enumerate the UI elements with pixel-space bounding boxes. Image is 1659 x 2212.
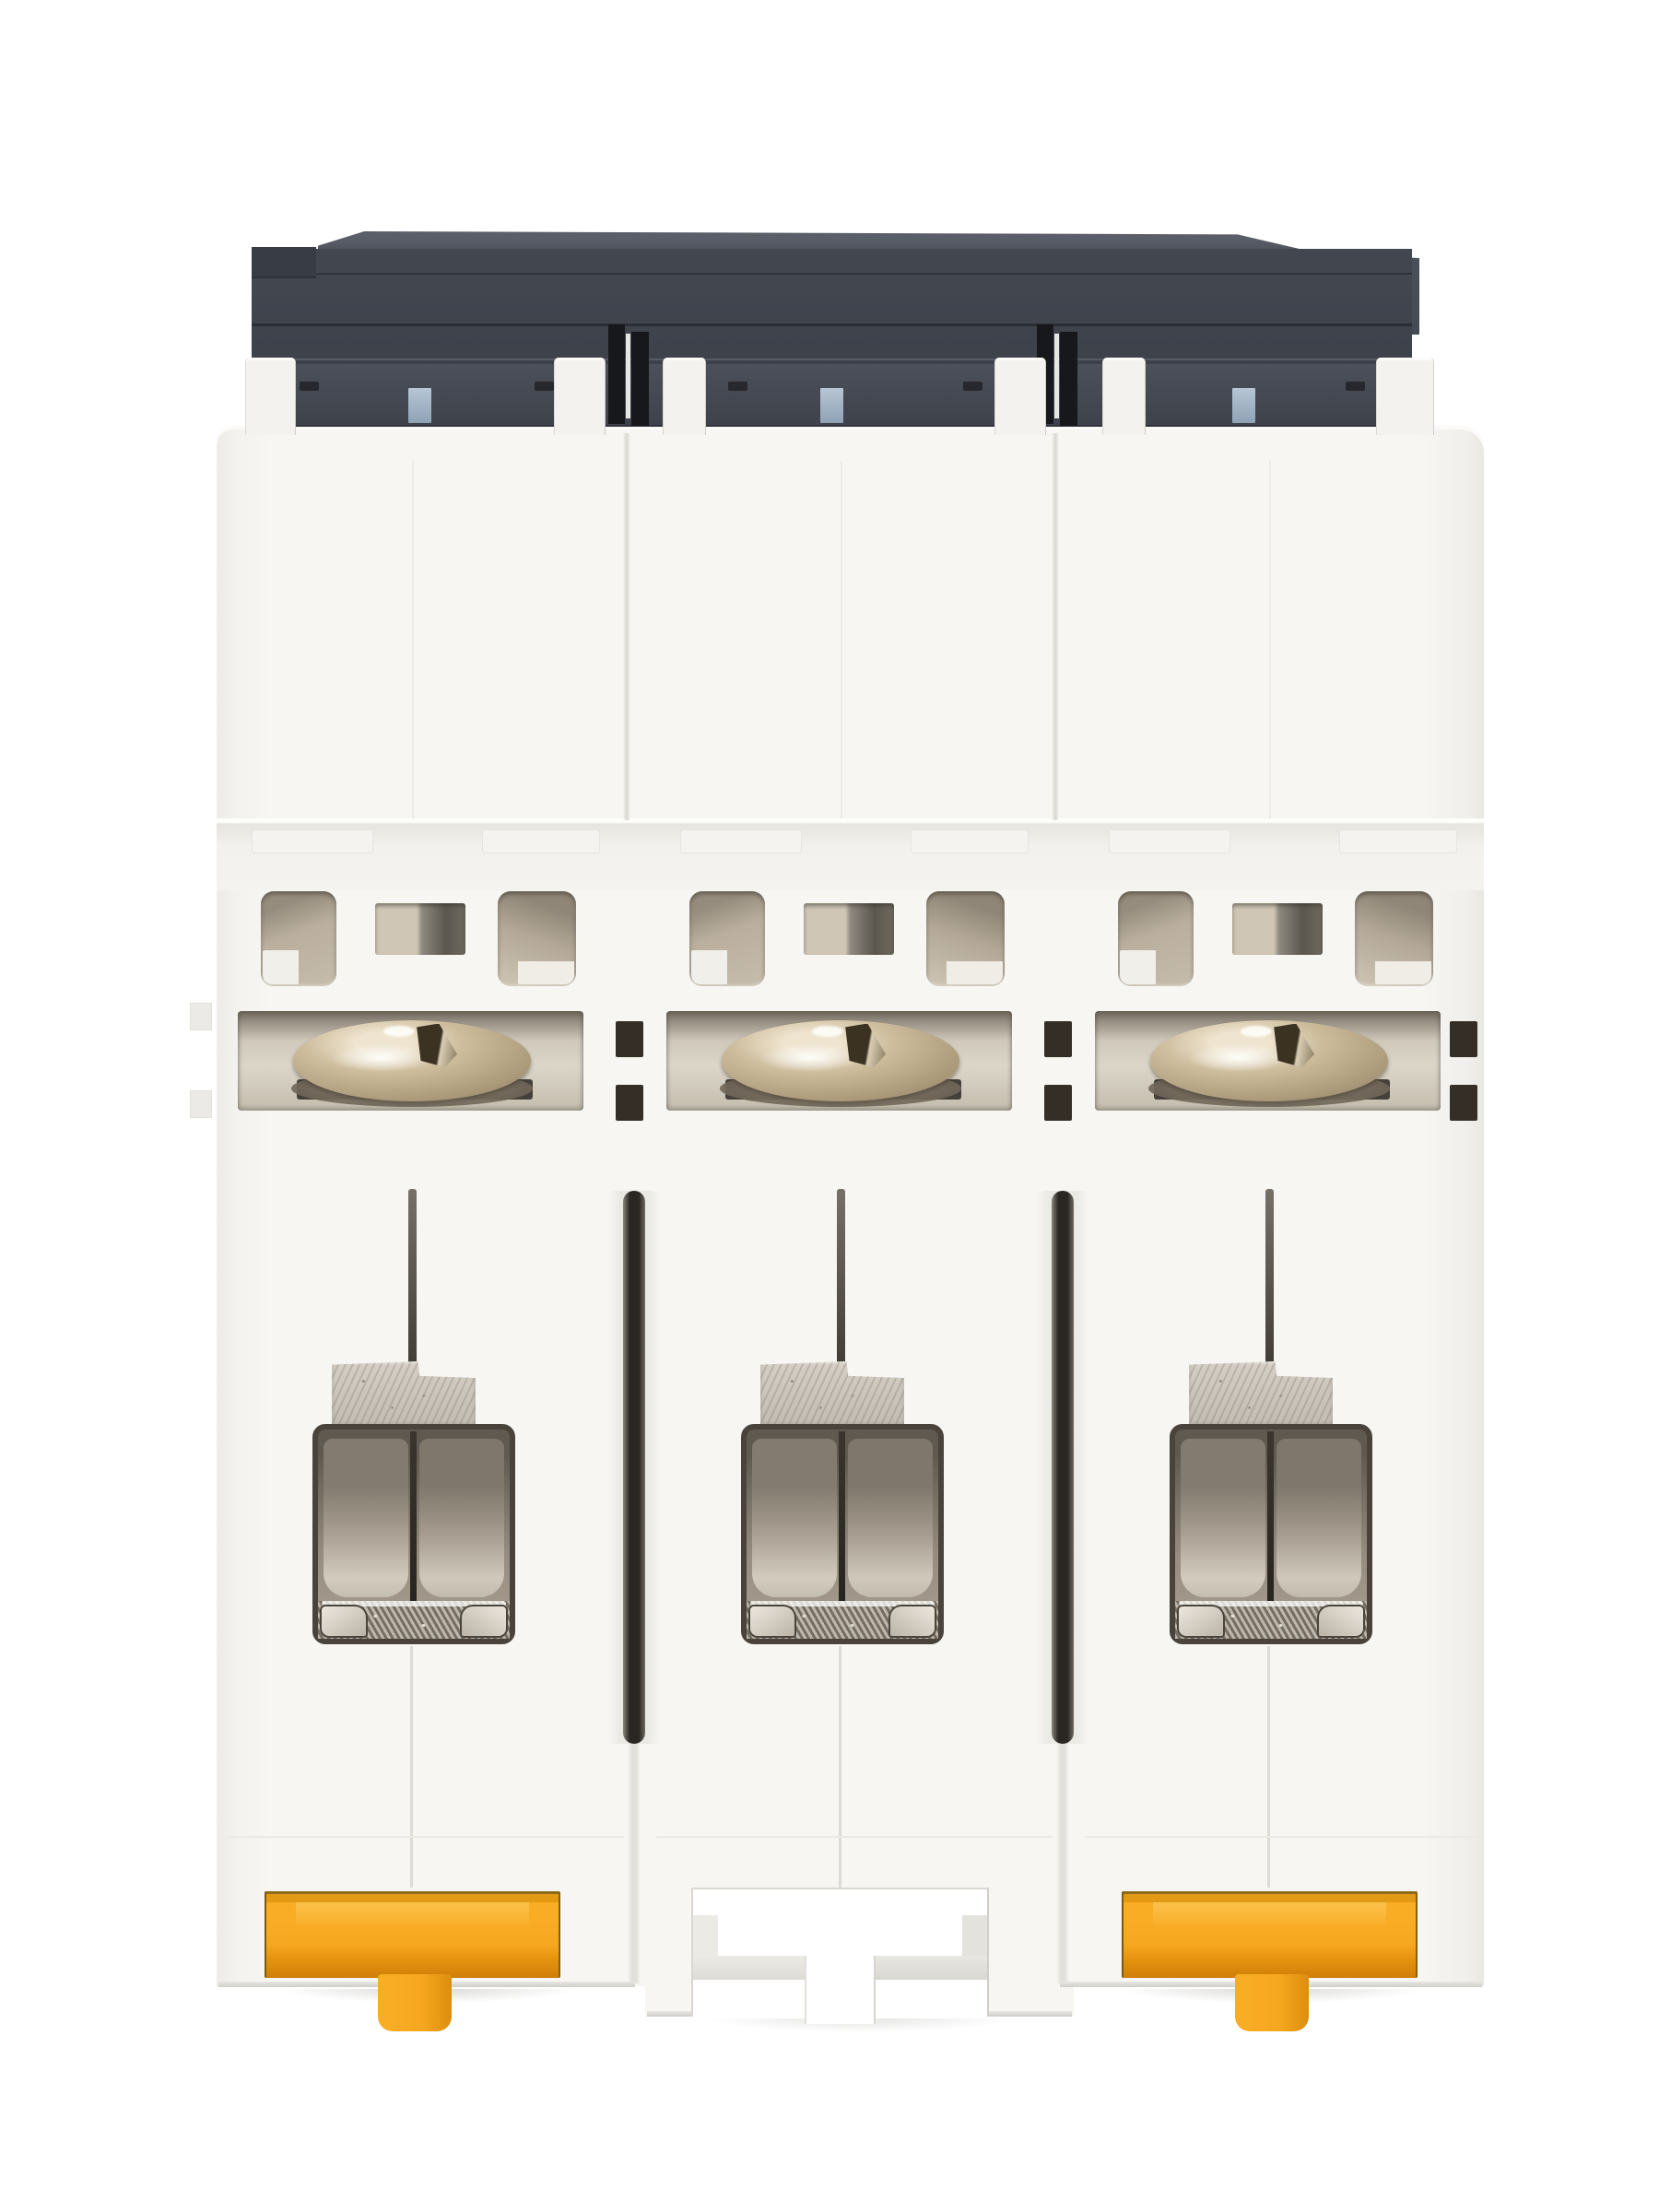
notch-channel: [805, 1956, 876, 2024]
terminal-metal-tab: [760, 1361, 904, 1428]
busbar-slot: [375, 903, 465, 955]
din-rail-clip-tab: [1235, 1974, 1309, 2031]
notch-wall: [693, 1956, 805, 1980]
terminal-cavity: [324, 1439, 408, 1597]
terminal-cavity: [848, 1439, 933, 1597]
terminal-divider: [1267, 1431, 1274, 1601]
notch-wall: [876, 1956, 987, 1980]
pole-center-seam: [839, 1646, 841, 1888]
wire-terminal-opening: [312, 1424, 515, 1644]
terminal-divider: [839, 1431, 845, 1601]
clamp-hook: [320, 1605, 368, 1638]
mould-line: [1085, 1836, 1481, 1838]
busbar-slot: [804, 903, 894, 955]
pole-center-seam: [1267, 1646, 1270, 1888]
pole-center-seam: [412, 461, 414, 818]
terminal-cavity: [419, 1439, 504, 1597]
center-groove: [837, 1189, 845, 1364]
terminal-screw-recess: [1095, 1011, 1441, 1111]
ledge-recess: [680, 829, 802, 853]
pole-3: [1074, 0, 1502, 2212]
terminal-screw-recess: [238, 1011, 583, 1111]
ledge-recess: [252, 829, 373, 853]
din-rail-clip: [1122, 1891, 1418, 1978]
terminal-metal-tab: [332, 1361, 476, 1428]
vent-window: [926, 891, 1005, 986]
terminal-cavity: [1181, 1439, 1265, 1597]
pole-1: [217, 0, 645, 2212]
edge-recess: [190, 1003, 212, 1030]
vent-window: [1118, 891, 1194, 986]
center-groove: [1265, 1189, 1274, 1364]
screw-highlight: [383, 1026, 415, 1037]
pole-center-seam: [841, 461, 842, 818]
clamp-hook: [1317, 1605, 1365, 1638]
edge-recess: [190, 1090, 212, 1118]
ledge-recess: [911, 829, 1029, 853]
terminal-cavity: [752, 1439, 837, 1597]
clamp-hook: [1177, 1605, 1225, 1638]
pole-center-seam: [1269, 461, 1271, 818]
wire-terminal-opening: [1170, 1424, 1372, 1644]
terminal-screw-recess: [666, 1011, 1012, 1111]
mould-line: [656, 1836, 1053, 1838]
terminal-metal-tab: [1189, 1361, 1333, 1428]
mould-line: [228, 1836, 624, 1838]
pole-center-seam: [410, 1646, 413, 1888]
ledge-recess: [482, 829, 600, 853]
wire-terminal-opening: [741, 1424, 944, 1644]
ledge-recess: [1339, 829, 1457, 853]
din-rail-clip-tab: [378, 1974, 452, 2031]
vent-window: [689, 891, 765, 986]
busbar-slot: [1232, 903, 1323, 955]
terminal-cavity: [1277, 1439, 1361, 1597]
screw-highlight: [1241, 1026, 1272, 1037]
din-rail-clip: [265, 1891, 560, 1978]
pole-2: [645, 0, 1074, 2212]
vent-window: [261, 891, 336, 986]
photo-stage: [0, 0, 1659, 2212]
clamp-hook: [888, 1605, 936, 1638]
center-groove: [408, 1189, 417, 1364]
screw-highlight: [812, 1026, 843, 1037]
terminal-divider: [410, 1431, 417, 1601]
vent-window: [498, 891, 576, 986]
clamp-hook: [748, 1605, 796, 1638]
clamp-hook: [460, 1605, 508, 1638]
vent-window: [1355, 891, 1433, 986]
ledge-recess: [1109, 829, 1230, 853]
